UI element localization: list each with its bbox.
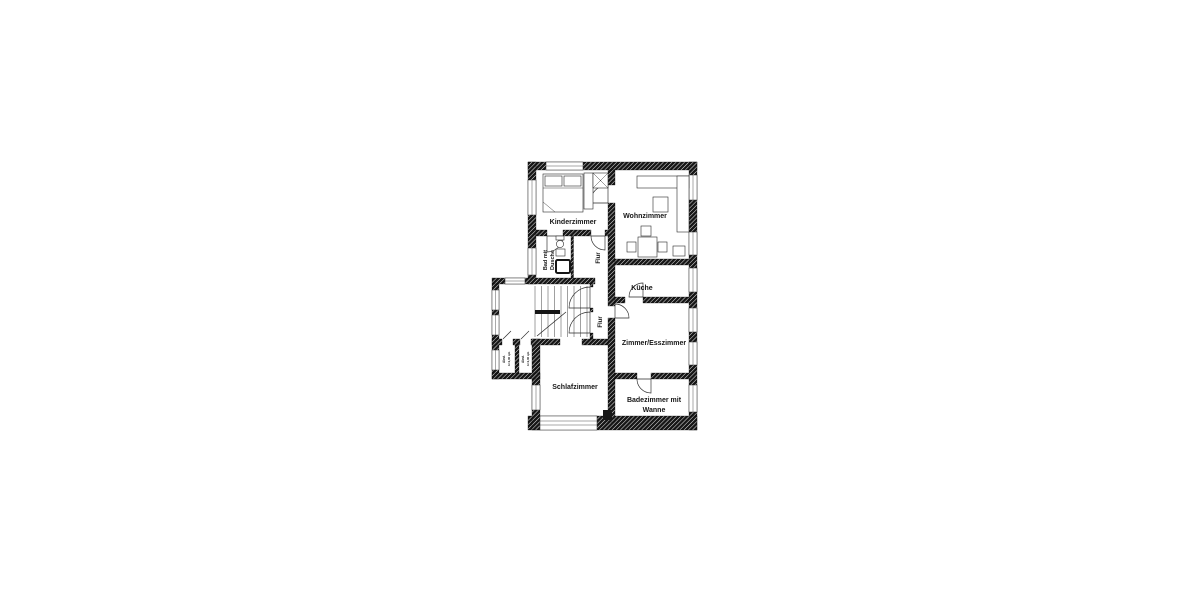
wall-segment xyxy=(605,230,608,236)
room-label-flur-lower: Flur xyxy=(598,316,604,328)
wall-segment xyxy=(615,297,625,303)
window xyxy=(689,342,697,365)
wardrobe xyxy=(584,173,593,209)
door-arc-esszimmer xyxy=(615,304,629,318)
door-arc-kinderzimmer xyxy=(591,236,605,250)
room-label-wohnzimmer: Wohnzimmer xyxy=(623,213,667,220)
window xyxy=(528,248,536,275)
window xyxy=(505,278,525,284)
window xyxy=(689,308,697,332)
window xyxy=(689,385,697,412)
window xyxy=(528,180,536,215)
wall-segment xyxy=(563,230,591,236)
wall-segment xyxy=(492,373,540,379)
stair-landing-edge xyxy=(535,310,560,314)
sink xyxy=(556,249,565,256)
door-leaf-abst-2 xyxy=(521,331,529,339)
wall-segment xyxy=(515,345,519,373)
floor-plan-container: Kinderzimmer Wohnzimmer Bad mit Dusche F… xyxy=(487,160,700,437)
room-label-abst-1: Abst. xyxy=(502,355,506,363)
room-label-zimmer-esszimmer: Zimmer/Esszimmer xyxy=(622,340,686,347)
wall-segment xyxy=(590,284,593,287)
window xyxy=(492,290,499,310)
window xyxy=(492,350,499,370)
wall-segment xyxy=(536,230,547,236)
door-arc-badezimmer xyxy=(637,379,651,393)
shower xyxy=(556,260,570,273)
room-label-badezimmer-line2: Wanne xyxy=(643,407,666,414)
stairs xyxy=(535,286,587,337)
wall-segment xyxy=(608,318,615,422)
room-area-abst-2: A=1,40 qm xyxy=(526,351,530,366)
wall-segment xyxy=(608,203,615,306)
window xyxy=(689,268,697,292)
wall-segment xyxy=(651,373,689,379)
wall-segment xyxy=(615,259,689,265)
window xyxy=(689,175,697,200)
wall-segment xyxy=(590,308,593,312)
room-label-bad-line2: Dusche xyxy=(550,250,556,270)
shaft-symbol xyxy=(593,173,608,188)
room-label-schlafzimmer: Schlafzimmer xyxy=(552,384,598,391)
wall-segment xyxy=(531,339,560,345)
floor-plan: Kinderzimmer Wohnzimmer Bad mit Dusche F… xyxy=(487,160,700,437)
room-label-kinderzimmer: Kinderzimmer xyxy=(550,219,597,226)
room-label-abst-2: Abst. xyxy=(521,355,525,363)
room-label-bad-line1: Bad mit xyxy=(543,250,549,270)
room-label-badezimmer-line1: Badezimmer mit xyxy=(627,397,682,404)
wall-segment xyxy=(615,373,637,379)
dining-set xyxy=(627,226,685,257)
room-label-flur-upper: Flur xyxy=(596,252,602,264)
window xyxy=(689,232,697,255)
wall-segment xyxy=(582,339,608,345)
window xyxy=(540,416,597,430)
coffee-table xyxy=(653,197,668,212)
wall-segment xyxy=(643,297,689,303)
window xyxy=(492,315,499,335)
wall-segment xyxy=(571,236,574,278)
room-label-kueche: Küche xyxy=(631,285,653,292)
wall-segment xyxy=(590,333,593,339)
chimney-pier xyxy=(603,410,612,420)
wall-segment xyxy=(492,339,502,345)
wall-segment xyxy=(608,170,615,185)
toilet xyxy=(556,236,564,248)
door-leaf-abst-1 xyxy=(503,331,511,339)
room-area-abst-1: A=1,40 qm xyxy=(507,351,511,366)
window xyxy=(546,162,583,170)
page-background: Kinderzimmer Wohnzimmer Bad mit Dusche F… xyxy=(0,0,1200,600)
bed xyxy=(543,174,583,212)
window xyxy=(532,385,540,410)
wall-segment xyxy=(532,339,540,430)
wall-segment xyxy=(513,339,520,345)
